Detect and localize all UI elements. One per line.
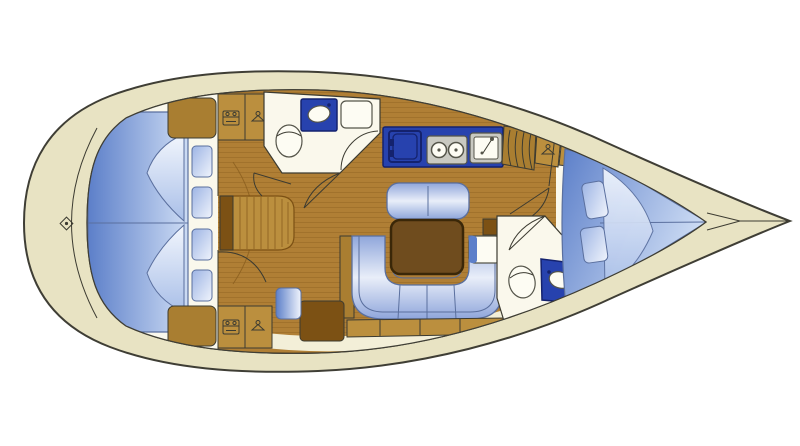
toilet	[276, 125, 302, 157]
vanity-seat	[341, 101, 372, 128]
yacht-floor-plan-canvas	[0, 0, 800, 446]
corner-locker	[168, 306, 216, 346]
yacht-floor-plan	[0, 0, 800, 446]
galley	[383, 127, 503, 167]
stove	[427, 136, 467, 164]
salon-table	[391, 220, 463, 274]
faucet-icon	[547, 270, 551, 274]
seat-box	[469, 236, 501, 263]
pillow	[192, 187, 212, 218]
pillow	[580, 226, 609, 264]
chart-cabinet	[300, 301, 344, 341]
locker-bank-bottom-left	[218, 306, 272, 348]
nav-seat	[276, 288, 301, 319]
faucet-icon	[327, 103, 331, 107]
companionway-steps	[220, 196, 294, 250]
galley-sink	[470, 133, 502, 163]
icebox	[389, 131, 421, 162]
pillow	[192, 146, 212, 177]
corner-locker	[168, 98, 216, 138]
pillow	[192, 229, 212, 260]
pillow	[192, 270, 212, 301]
